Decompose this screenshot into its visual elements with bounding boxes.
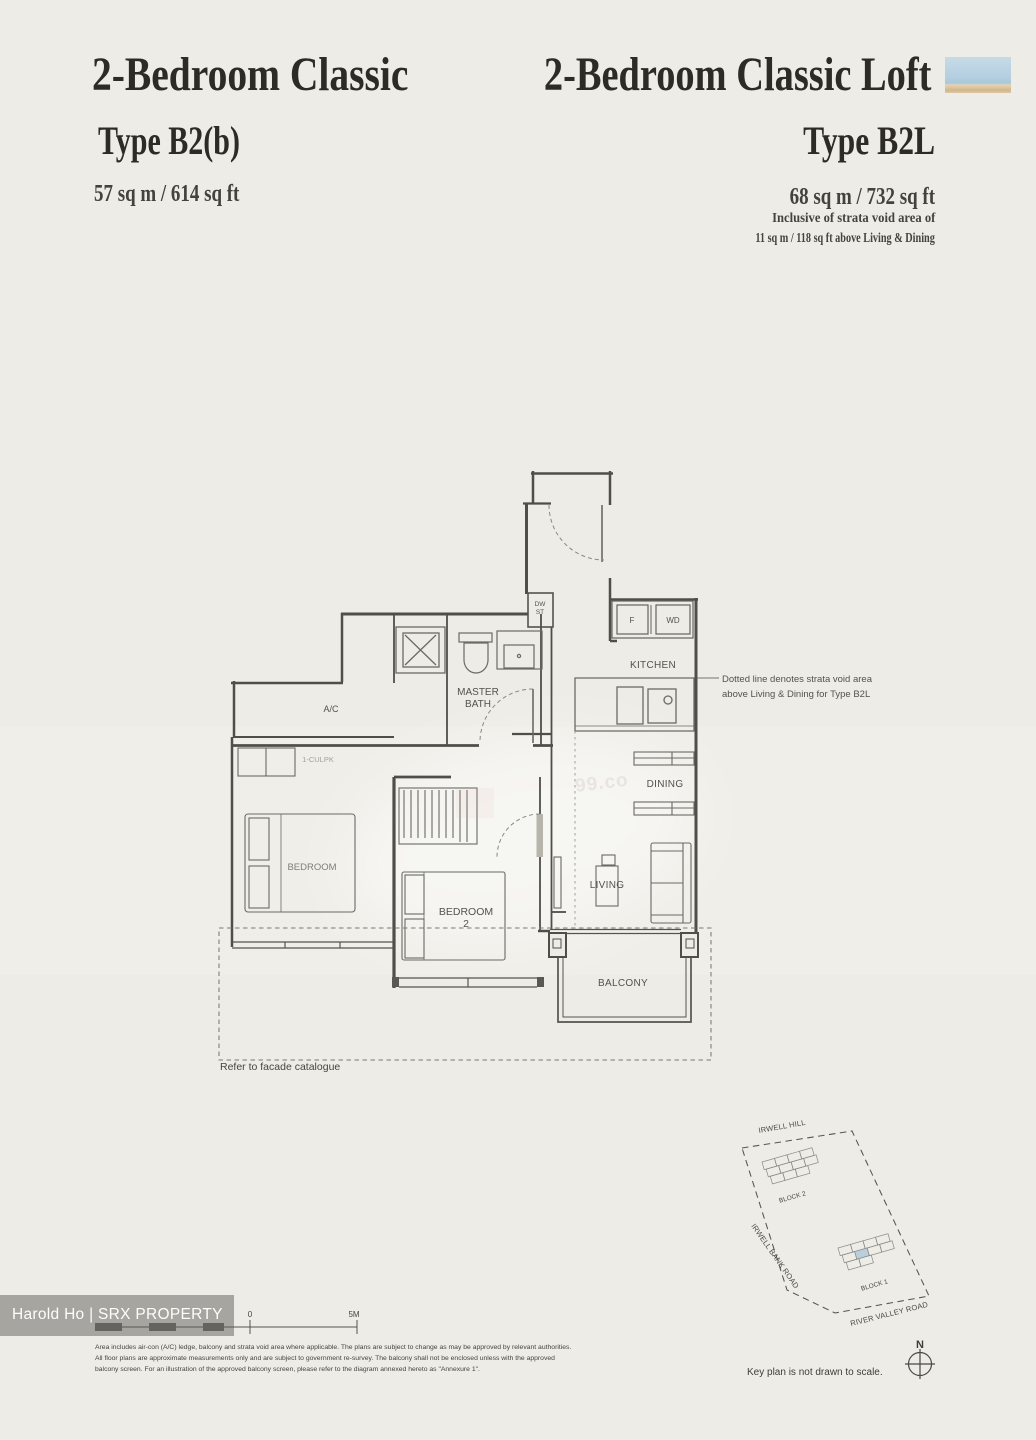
- svg-text:0: 0: [248, 1310, 253, 1319]
- svg-text:BLOCK 2: BLOCK 2: [778, 1190, 807, 1204]
- svg-text:IRWELL HILL: IRWELL HILL: [758, 1118, 806, 1135]
- svg-text:KITCHEN: KITCHEN: [630, 660, 676, 671]
- svg-text:BLOCK 1: BLOCK 1: [860, 1278, 889, 1292]
- svg-text:LIVING: LIVING: [590, 880, 625, 891]
- svg-text:BEDROOM: BEDROOM: [287, 862, 336, 873]
- svg-text:DINING: DINING: [647, 779, 684, 790]
- svg-text:99.co: 99.co: [574, 770, 630, 797]
- svg-text:DW: DW: [535, 601, 547, 608]
- svg-text:BATH: BATH: [465, 699, 491, 710]
- svg-text:2: 2: [463, 918, 469, 930]
- svg-text:F: F: [630, 616, 635, 625]
- svg-text:IRWELL BANK ROAD: IRWELL BANK ROAD: [749, 1222, 801, 1291]
- svg-text:N: N: [916, 1339, 924, 1351]
- svg-text:5M: 5M: [348, 1310, 359, 1319]
- svg-text:BALCONY: BALCONY: [598, 978, 648, 989]
- svg-text:BEDROOM: BEDROOM: [439, 906, 493, 918]
- svg-text:WD: WD: [666, 616, 680, 625]
- svg-text:ST: ST: [536, 609, 544, 616]
- svg-text:Dotted line denotes strata voi: Dotted line denotes strata void area: [722, 674, 873, 685]
- svg-text:1-CULPK: 1-CULPK: [302, 755, 334, 764]
- svg-text:A/C: A/C: [323, 704, 339, 714]
- svg-text:MASTER: MASTER: [457, 687, 499, 698]
- svg-text:RIVER VALLEY ROAD: RIVER VALLEY ROAD: [849, 1300, 929, 1328]
- svg-text:above Living & Dining for Type: above Living & Dining for Type B2L: [722, 689, 870, 700]
